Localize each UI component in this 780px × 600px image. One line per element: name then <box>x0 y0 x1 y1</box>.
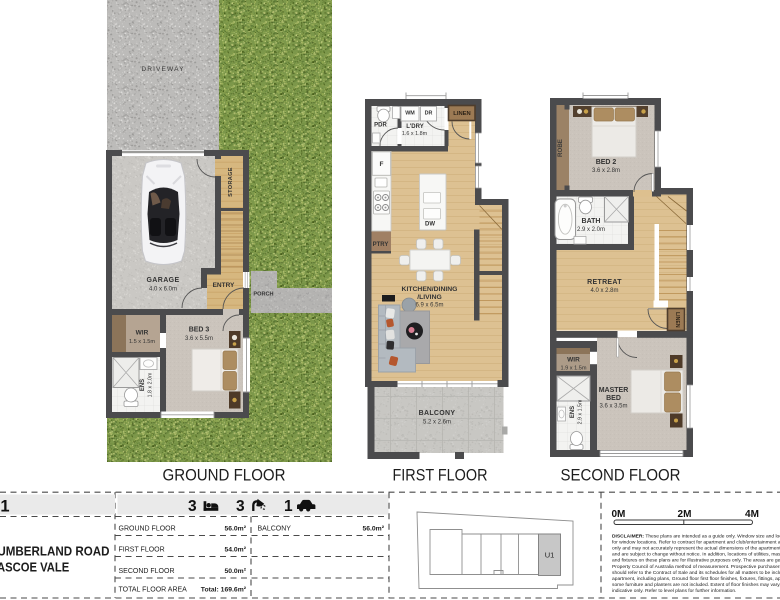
svg-text:4.0 x 6.0m: 4.0 x 6.0m <box>149 287 177 293</box>
svg-text:1.9 x 1.5m: 1.9 x 1.5m <box>560 366 586 372</box>
svg-text:1.6 x 1.8m: 1.6 x 1.8m <box>402 131 428 137</box>
svg-text:56.0m²: 56.0m² <box>362 526 384 533</box>
svg-text:RETREAT: RETREAT <box>587 279 622 286</box>
svg-text:U1: U1 <box>0 498 10 516</box>
svg-text:BATH: BATH <box>582 218 601 225</box>
svg-text:BED 2: BED 2 <box>596 159 617 166</box>
svg-text:ENS: ENS <box>570 406 576 418</box>
svg-text:4M: 4M <box>745 509 759 520</box>
svg-text:PORCH: PORCH <box>253 292 273 298</box>
svg-text:54.0m²: 54.0m² <box>224 547 246 554</box>
svg-text:DRIVEWAY: DRIVEWAY <box>141 66 184 73</box>
svg-text:Property Council of Australia: Property Council of Australia method of … <box>612 564 780 570</box>
svg-text:1.5 x 1.5m: 1.5 x 1.5m <box>129 339 155 345</box>
svg-text:only and may not accurately re: only and may not accurately represent th… <box>612 546 780 552</box>
svg-text:WIR: WIR <box>136 330 149 337</box>
svg-text:DW: DW <box>425 222 435 228</box>
svg-text:0M: 0M <box>612 509 626 520</box>
svg-text:SECOND FLOOR: SECOND FLOOR <box>119 568 175 575</box>
svg-text:2.9 x 1.5m: 2.9 x 1.5m <box>578 399 584 424</box>
svg-text:GROUND FLOOR: GROUND FLOOR <box>163 467 286 485</box>
svg-text:GARAGE: GARAGE <box>146 277 179 284</box>
svg-text:U1: U1 <box>545 551 555 560</box>
svg-text:PTRY: PTRY <box>373 242 389 248</box>
svg-text:WM: WM <box>405 111 415 117</box>
svg-text:ENTRY: ENTRY <box>213 282 235 289</box>
svg-text:2M: 2M <box>678 509 692 520</box>
svg-text:CUMBERLAND ROAD: CUMBERLAND ROAD <box>0 544 110 559</box>
svg-text:ENS: ENS <box>140 379 146 391</box>
svg-text:and are subject to change with: and are subject to change without notice… <box>612 552 780 558</box>
svg-text:DR: DR <box>425 111 433 117</box>
svg-text:DISCLAIMER: These plans are in: DISCLAIMER: These plans are intended as … <box>612 534 780 540</box>
svg-text:4.0 x 2.8m: 4.0 x 2.8m <box>590 288 618 294</box>
svg-text:/LIVING: /LIVING <box>417 294 442 301</box>
svg-text:3.6 x 2.8m: 3.6 x 2.8m <box>592 168 620 174</box>
svg-text:should refer to the Contract o: should refer to the Contract of Sale and… <box>612 570 780 576</box>
svg-text:STORAGE: STORAGE <box>228 167 234 197</box>
svg-text:apartment, including plans, Gr: apartment, including plans, Ground floor… <box>612 576 780 582</box>
svg-text:MASTER: MASTER <box>599 387 629 394</box>
svg-text:KITCHEN/DINING: KITCHEN/DINING <box>402 286 458 293</box>
svg-text:ROBE: ROBE <box>557 139 564 157</box>
svg-text:3: 3 <box>236 498 245 515</box>
svg-text:LINEN: LINEN <box>453 111 470 117</box>
svg-text:BALCONY: BALCONY <box>419 410 456 417</box>
svg-text:FIRST FLOOR: FIRST FLOOR <box>393 467 488 485</box>
svg-text:TOTAL FLOOR AREA: TOTAL FLOOR AREA <box>119 587 188 594</box>
svg-text:2.9 x 2.0m: 2.9 x 2.0m <box>577 227 605 233</box>
svg-text:some furniture and planters ar: some furniture and planters are not incl… <box>612 582 780 588</box>
svg-text:BALCONY: BALCONY <box>258 526 292 533</box>
svg-text:Total: 169.6m²: Total: 169.6m² <box>201 587 247 594</box>
svg-text:1: 1 <box>284 498 293 515</box>
svg-text:F: F <box>380 161 384 168</box>
svg-text:PDR: PDR <box>374 123 387 129</box>
svg-text:6.9 x 6.5m: 6.9 x 6.5m <box>415 303 443 309</box>
svg-text:5.2 x 2.6m: 5.2 x 2.6m <box>423 420 451 426</box>
svg-text:1.8 x 2.0m: 1.8 x 2.0m <box>148 372 154 397</box>
svg-text:indicative only. Refer to leve: indicative only. Refer to level plans fo… <box>612 588 736 594</box>
svg-text:FIRST FLOOR: FIRST FLOOR <box>119 547 165 554</box>
svg-text:56.0m²: 56.0m² <box>224 526 246 533</box>
svg-text:for window locations. Refer to: for window locations. Refer to contract … <box>612 540 780 546</box>
svg-text:L'DRY: L'DRY <box>406 124 424 130</box>
svg-text:LINEN: LINEN <box>674 312 680 328</box>
svg-text:BED 3: BED 3 <box>189 327 210 334</box>
svg-text:3: 3 <box>188 498 197 515</box>
svg-text:BED: BED <box>606 395 621 402</box>
svg-text:3.6 x 5.5m: 3.6 x 5.5m <box>185 336 213 342</box>
svg-text:SECOND FLOOR: SECOND FLOOR <box>561 467 681 485</box>
svg-text:and fixtures on these plans ar: and fixtures on these plans are for illu… <box>612 558 780 564</box>
svg-text:3.6 x 3.5m: 3.6 x 3.5m <box>599 404 627 410</box>
svg-text:WIR: WIR <box>567 357 580 364</box>
svg-text:GROUND FLOOR: GROUND FLOOR <box>119 526 176 533</box>
svg-text:50.0m²: 50.0m² <box>224 568 246 575</box>
svg-text:PASCOE VALE: PASCOE VALE <box>0 560 70 575</box>
